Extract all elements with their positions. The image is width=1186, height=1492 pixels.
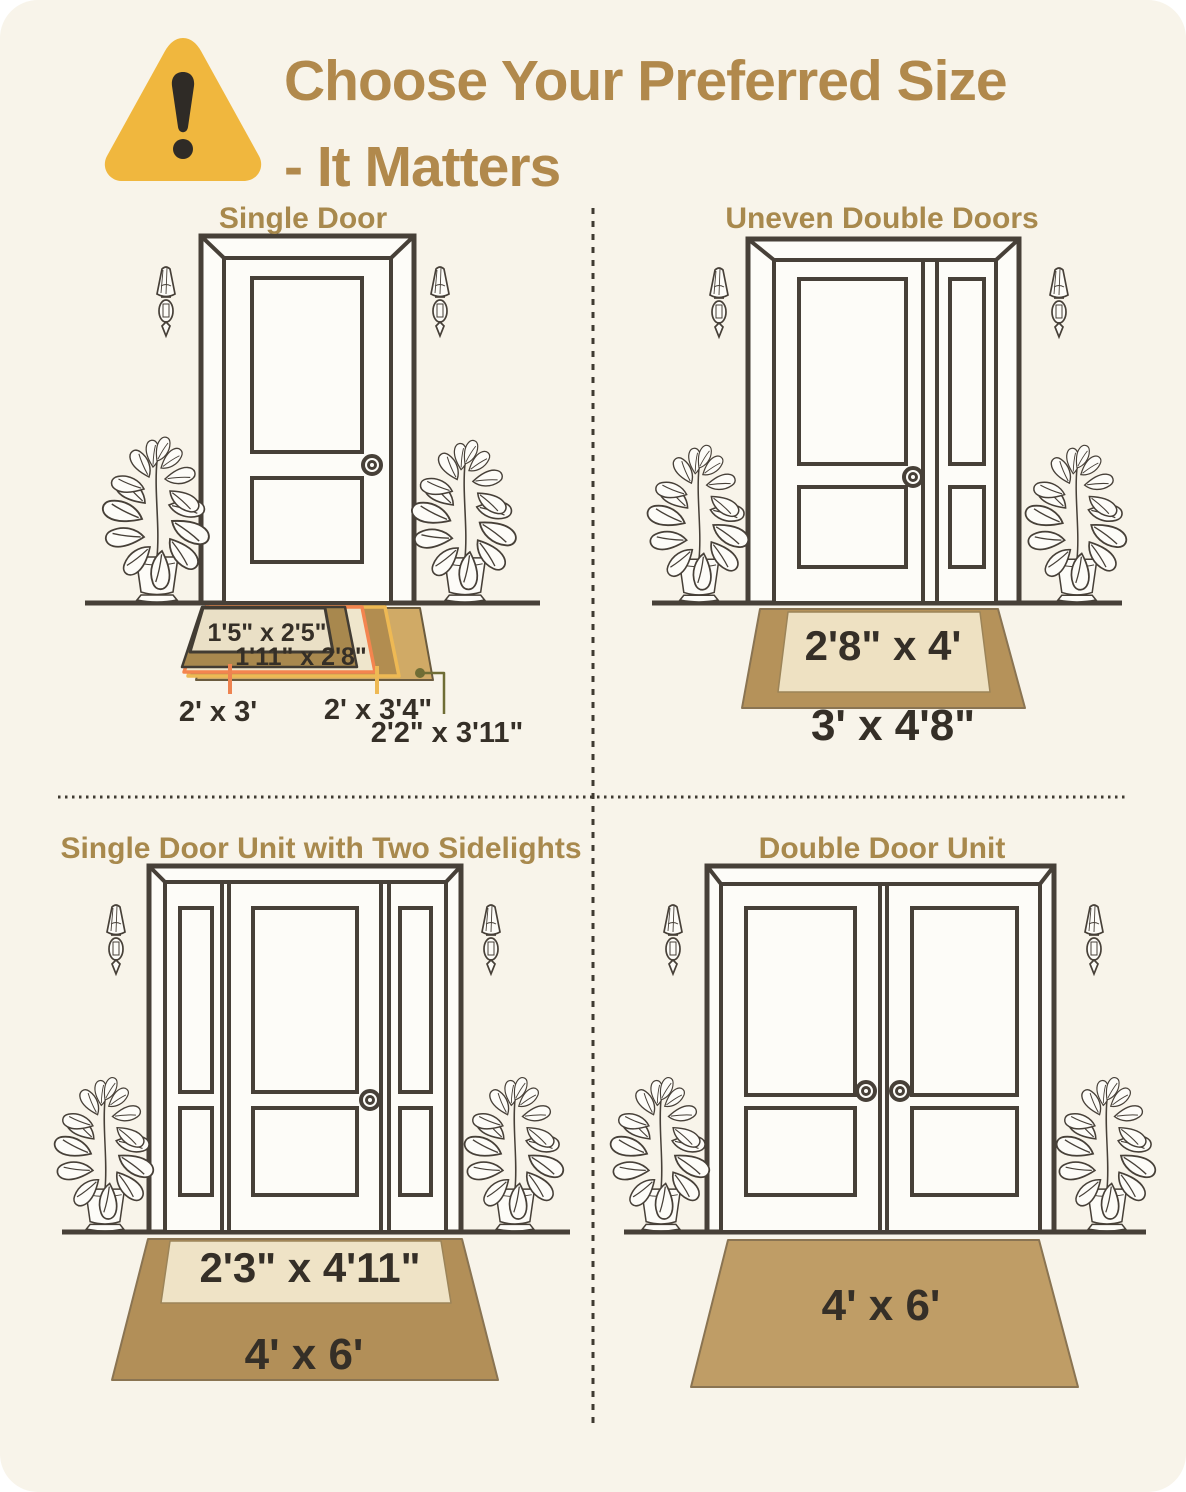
section-title-uneven-double-doors: Uneven Double Doors (725, 202, 1038, 236)
potted-plant-icon (102, 437, 210, 602)
mat-size-label-3x4-8: 3' x 4'8" (811, 701, 975, 751)
mat-size-label-2x3: 2' x 3' (179, 696, 257, 729)
wall-sconce-icon (107, 905, 125, 974)
sidelights-door-illustration (54, 866, 570, 1232)
wall-sconce-icon (1085, 905, 1103, 974)
wall-sconce-icon (157, 267, 175, 336)
potted-plant-icon (1025, 445, 1127, 602)
wall-sconce-icon (710, 268, 728, 337)
page-title-line2: - It Matters (284, 124, 1007, 210)
mat-size-label-1-11x2-8: 1'11" x 2'8" (235, 643, 367, 672)
potted-plant-icon (647, 445, 749, 602)
single-door-illustration (85, 236, 540, 603)
potted-plant-icon (54, 1078, 154, 1231)
infographic: Choose Your Preferred Size - It Matters … (0, 0, 1186, 1492)
mat-size-label-2-8x4: 2'8" x 4' (805, 622, 962, 670)
wall-sconce-icon (664, 905, 682, 974)
mat-size-label-2-2x3-11: 2'2" x 3'11" (371, 717, 524, 750)
page-title: Choose Your Preferred Size - It Matters (284, 38, 1007, 210)
wall-sconce-icon (431, 267, 449, 336)
wall-sconce-icon (1050, 268, 1068, 337)
section-title-double-door: Double Door Unit (759, 832, 1006, 866)
double-door-illustration (610, 866, 1156, 1232)
potted-plant-icon (464, 1078, 564, 1231)
potted-plant-icon (411, 440, 517, 602)
uneven-double-doors-illustration (647, 239, 1127, 603)
page-title-line1: Choose Your Preferred Size (284, 38, 1007, 124)
mat-size-label-2-3x4-11: 2'3" x 4'11" (200, 1244, 421, 1292)
potted-plant-icon (1056, 1078, 1156, 1231)
section-title-sidelights-door: Single Door Unit with Two Sidelights (60, 832, 581, 866)
section-title-single-door: Single Door (219, 202, 387, 236)
warning-icon (105, 38, 261, 181)
potted-plant-icon (610, 1078, 710, 1231)
wall-sconce-icon (482, 905, 500, 974)
mat-size-label-4x6-right: 4' x 6' (822, 1281, 941, 1331)
mat-size-label-4x6-left: 4' x 6' (245, 1330, 364, 1380)
